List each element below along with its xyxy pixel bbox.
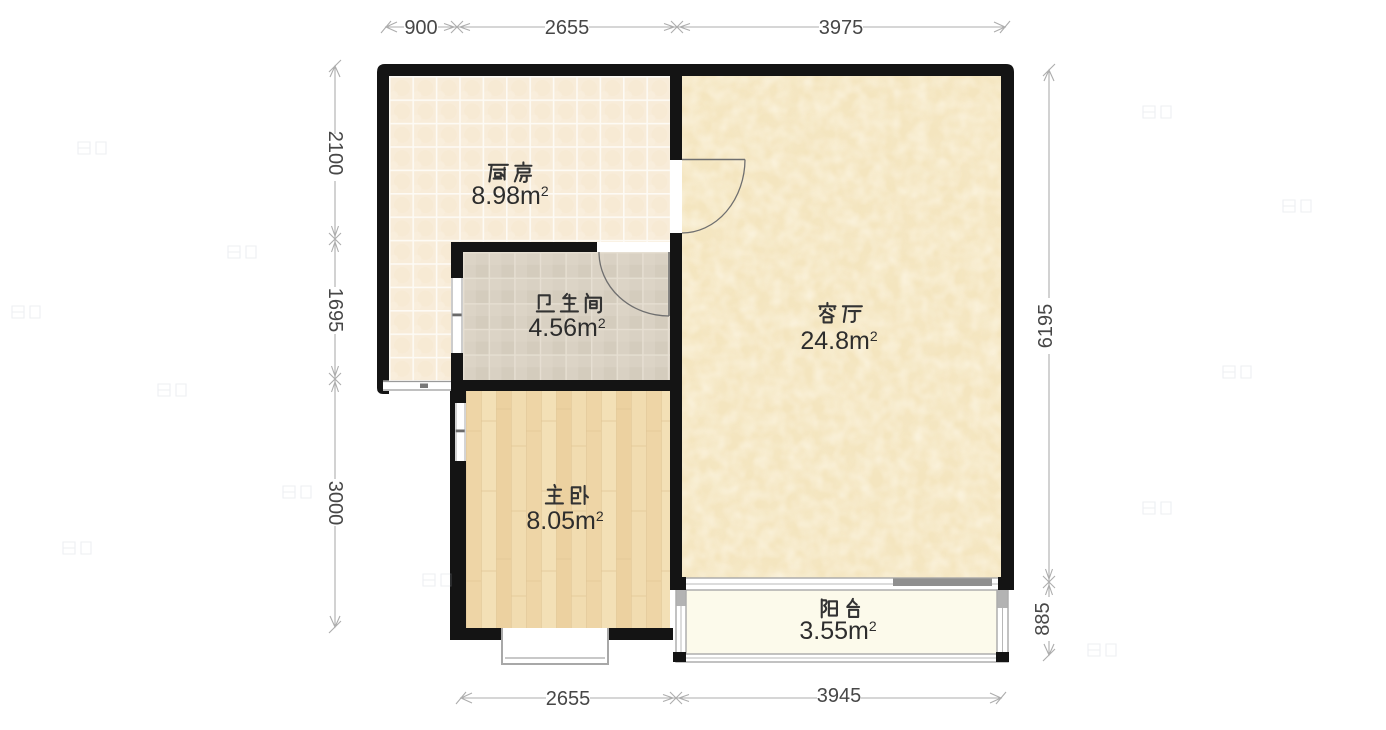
svg-text:2100: 2100 [324, 131, 346, 176]
svg-text:4.56m2: 4.56m2 [528, 314, 605, 342]
svg-text:1695: 1695 [324, 288, 346, 333]
svg-text:2655: 2655 [545, 17, 590, 39]
svg-text:6195: 6195 [1035, 304, 1057, 349]
svg-text:885: 885 [1032, 602, 1054, 635]
svg-text:900: 900 [404, 17, 437, 39]
svg-text:8.98m2: 8.98m2 [471, 182, 548, 210]
svg-text:2655: 2655 [546, 688, 591, 710]
svg-text:8.05m2: 8.05m2 [526, 507, 603, 535]
svg-text:3975: 3975 [819, 17, 864, 39]
svg-text:3945: 3945 [817, 685, 862, 707]
svg-text:3000: 3000 [324, 481, 346, 526]
svg-text:24.8m2: 24.8m2 [800, 327, 877, 355]
svg-text:3.55m2: 3.55m2 [799, 617, 876, 645]
